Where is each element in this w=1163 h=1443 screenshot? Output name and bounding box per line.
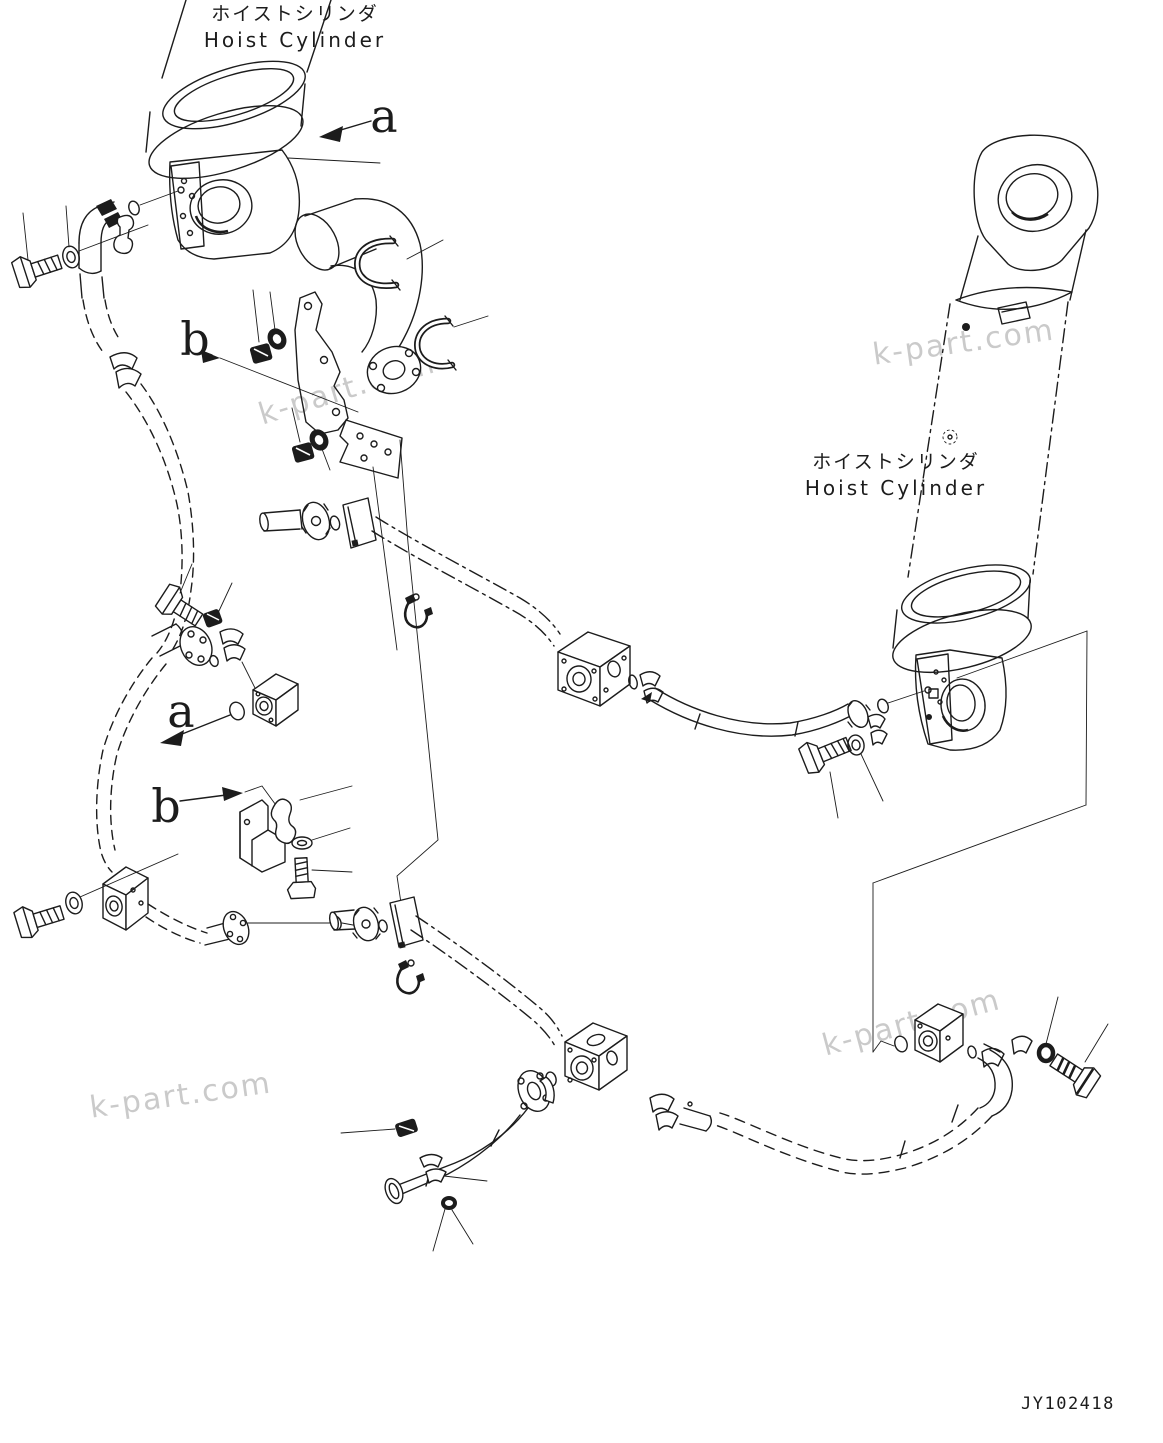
left-cylinder-label-jp: ホイストシリンダ [211, 3, 378, 25]
bolt [13, 896, 66, 940]
arrowhead-b-lower [222, 787, 243, 801]
hose-to-right-cylinder [650, 687, 931, 818]
washer [1039, 1045, 1053, 1061]
lower-bracket-assembly [240, 786, 352, 899]
clamp-half [868, 714, 885, 728]
hose-clamp [110, 353, 137, 369]
parts-diagram-canvas: k-part.com k-part.com k-part.com k-part.… [0, 0, 1163, 1443]
swivel-nut [298, 499, 333, 543]
view-marker-a-upper: a [370, 89, 397, 143]
plug [127, 200, 141, 216]
arrowhead-a-upper [319, 126, 343, 142]
clamp-half [220, 629, 243, 644]
right-hoist-cylinder [887, 135, 1098, 750]
clamp-half [640, 672, 660, 686]
j-hose-lower [397, 960, 425, 993]
u-bolt [417, 316, 456, 370]
u-bolt [357, 236, 400, 290]
right-cylinder-label-en: Hoist Cylinder [805, 476, 987, 500]
view-arrow-a-upper: a [319, 89, 398, 143]
block-view-a [253, 674, 298, 726]
bolt [154, 582, 208, 633]
nut [291, 442, 315, 464]
watermark-bottom-left: k-part.com [87, 1066, 273, 1126]
hose-end-flange [844, 698, 872, 731]
cap-nut [394, 1118, 418, 1138]
arrowhead-b-upper [201, 350, 220, 363]
manifold-block-center [558, 632, 663, 706]
mid-left-cluster [152, 564, 256, 690]
bolt [798, 728, 854, 776]
watermark-group: k-part.com k-part.com k-part.com k-part.… [87, 313, 1056, 1126]
clamp-half [420, 1155, 442, 1168]
bolt [286, 857, 316, 898]
plug [876, 698, 890, 715]
nut [249, 343, 273, 365]
watermark-bottom-right: k-part.com [818, 982, 1004, 1063]
left-cylinder-label: ホイストシリンダ Hoist Cylinder [204, 3, 386, 52]
view-arrow-a-lower: a [160, 684, 247, 746]
bolt [11, 246, 65, 291]
left-elbow-assembly [11, 187, 184, 388]
bottom-center-assembly [328, 897, 627, 1251]
right-cylinder-label-jp: ホイストシリンダ [812, 451, 979, 473]
washer [292, 837, 312, 849]
j-hose-upper [405, 594, 433, 627]
swivel-flange [219, 908, 254, 949]
right-cylinder-label: ホイストシリンダ Hoist Cylinder [805, 451, 987, 500]
o-ring [443, 1198, 455, 1208]
clamp-half [650, 1094, 674, 1112]
nut [202, 608, 223, 628]
washer [63, 890, 84, 915]
watermark-top-right: k-part.com [870, 313, 1056, 373]
left-cylinder-label-en: Hoist Cylinder [204, 28, 386, 52]
view-marker-b-lower: b [151, 779, 180, 833]
drawing-number: JY102418 [1021, 1394, 1115, 1414]
bottom-left-assembly [13, 854, 374, 948]
